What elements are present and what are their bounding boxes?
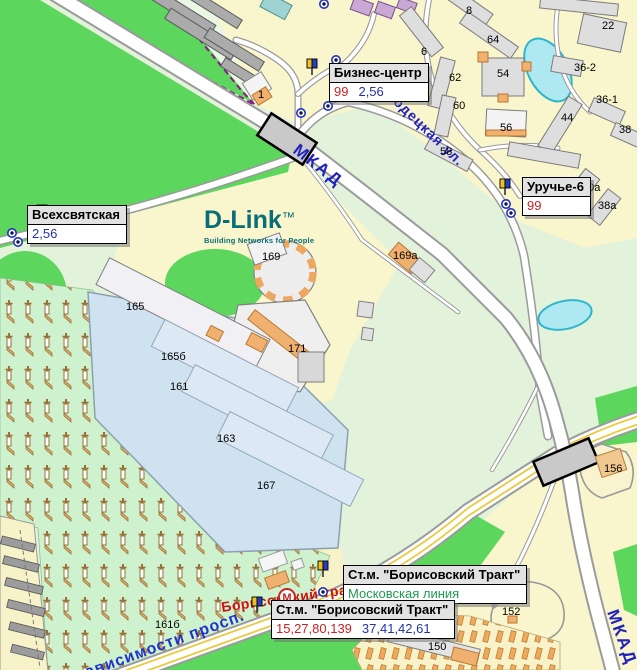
building-number: 58: [440, 146, 452, 158]
map-canvas[interactable]: Борисовский тракт МКАД МКАД Городецкая у…: [0, 0, 637, 670]
building-number: 64: [487, 34, 499, 46]
tooltip-title: Бизнес-центр: [330, 64, 428, 83]
metro-line-name: Московская линия: [348, 586, 459, 601]
building-number: 36-1: [596, 94, 618, 106]
building-number: 60: [453, 100, 465, 112]
building-number: 56: [500, 122, 512, 134]
route-numbers-blue: 2,56: [32, 226, 57, 241]
building-number: 171: [288, 343, 306, 355]
building-number: 152: [502, 606, 520, 618]
building-number: 44: [561, 112, 573, 124]
entrance-icon[interactable]: [507, 209, 515, 217]
entrance-icon[interactable]: [14, 238, 22, 246]
building-number: 156: [604, 463, 622, 475]
dlink-logo-tm: ™: [282, 210, 295, 225]
entrance-icon[interactable]: [319, 588, 327, 596]
building-number: 22: [602, 20, 614, 32]
building-number: 8: [466, 5, 472, 17]
dlink-logo: D-Link™ Building Networks for People: [204, 206, 314, 245]
route-numbers-red: 99: [334, 84, 348, 99]
route-numbers-red: 99: [527, 198, 541, 213]
map-layers: Борисовский тракт МКАД МКАД Городецкая у…: [0, 0, 637, 670]
building-number: 62: [449, 72, 461, 84]
tooltip-title: Ст.м. "Борисовский Тракт": [272, 601, 454, 620]
route-numbers-red: 15,27,80,139: [276, 621, 352, 636]
building-number: 165б: [161, 351, 186, 363]
tooltip-vsekhsvyatskaya[interactable]: Всехсвятская 2,56: [27, 205, 127, 244]
building-number: 6: [421, 46, 427, 58]
tooltip-title: Ст.м. "Борисовский Тракт": [344, 566, 526, 585]
entrance-icon[interactable]: [297, 109, 305, 117]
building-number: 161б: [155, 619, 180, 631]
building-number: 167: [257, 480, 275, 492]
building-number: 169а: [393, 250, 418, 262]
route-numbers-blue: 37,41,42,61: [362, 621, 431, 636]
building-number: 38: [619, 124, 631, 136]
building-number: 165: [126, 301, 144, 313]
building-number: 161: [170, 381, 188, 393]
tooltip-metro-line[interactable]: Ст.м. "Борисовский Тракт" Московская лин…: [343, 565, 527, 604]
entrance-icon[interactable]: [8, 229, 16, 237]
entrance-icon[interactable]: [324, 102, 332, 110]
tooltip-metro-routes[interactable]: Ст.м. "Борисовский Тракт" 15,27,80,139 3…: [271, 600, 455, 639]
tooltip-business-center[interactable]: Бизнес-центр 99 2,56: [329, 63, 429, 102]
dlink-logo-tagline: Building Networks for People: [204, 236, 314, 245]
entrance-icon[interactable]: [502, 200, 510, 208]
building-number: 150: [428, 641, 446, 653]
tooltip-uruchye[interactable]: Уручье-6 99: [522, 177, 591, 216]
building-number: 36-2: [574, 62, 596, 74]
building-number: 1: [258, 89, 264, 101]
building-number: 54: [497, 68, 509, 80]
route-numbers-blue: 2,56: [358, 84, 383, 99]
tooltip-title: Уручье-6: [523, 178, 590, 197]
tooltip-title: Всехсвятская: [28, 206, 126, 225]
dlink-logo-name: D-Link: [204, 206, 282, 234]
building-number: 38а: [598, 200, 617, 212]
entrance-icon[interactable]: [320, 0, 328, 8]
building-number: 163: [217, 433, 235, 445]
building-number: 169: [262, 251, 280, 263]
